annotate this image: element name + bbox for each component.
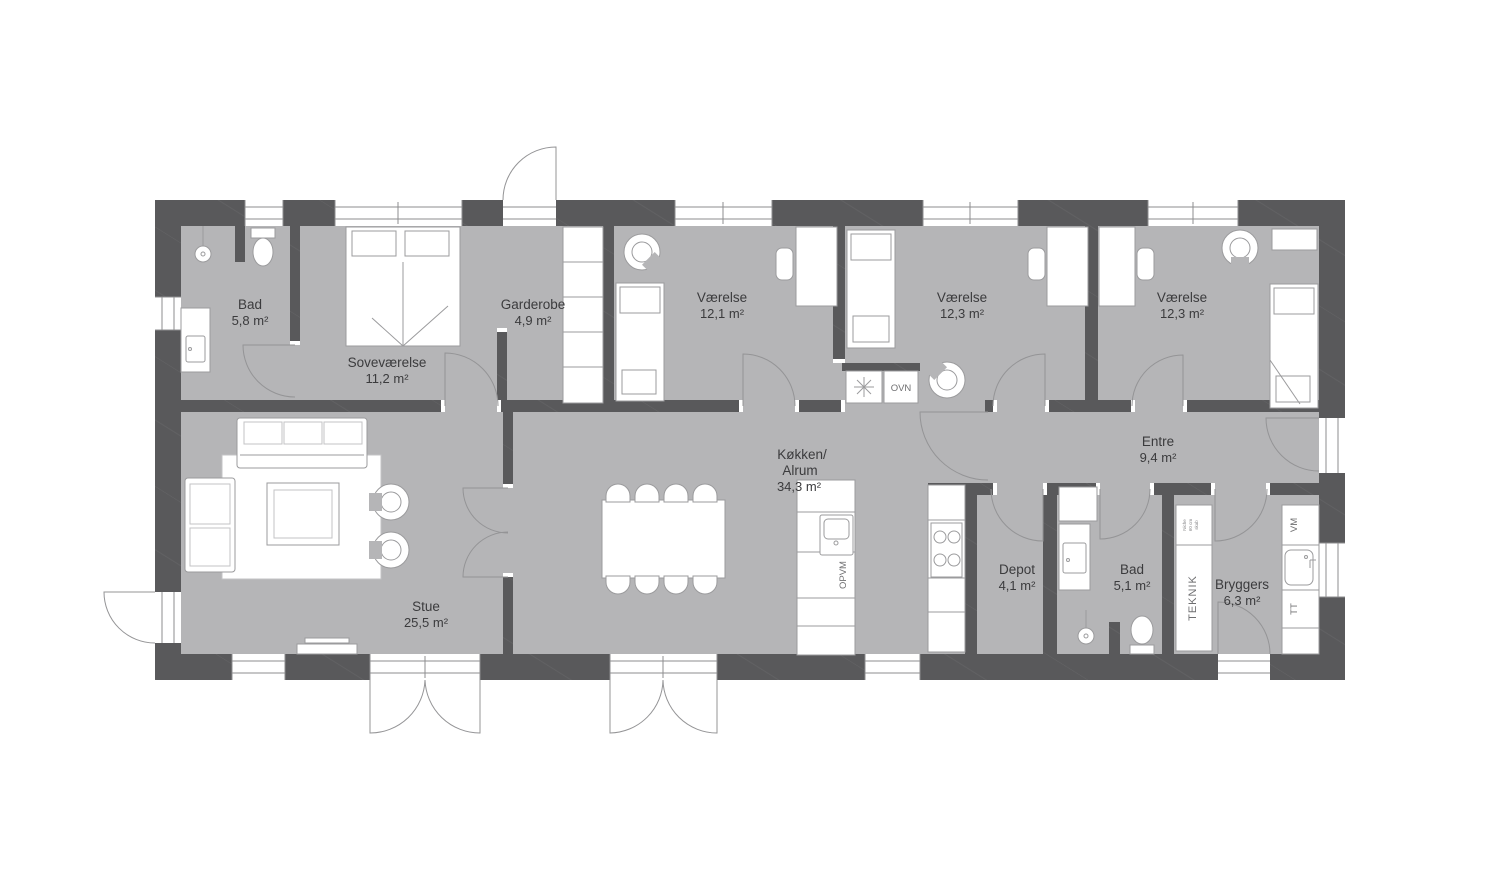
room-label-depot: Depot bbox=[999, 562, 1035, 577]
room-label-vaerelse3: Værelse bbox=[1157, 290, 1207, 305]
window bbox=[865, 654, 920, 680]
window bbox=[1319, 543, 1345, 597]
cabinet-note: Niche bbox=[1182, 519, 1187, 531]
wardrobe-shelving bbox=[563, 227, 603, 403]
room-area-stue: 25,5 m² bbox=[404, 615, 449, 630]
bedroom-furniture bbox=[346, 227, 460, 346]
sofa bbox=[237, 418, 367, 468]
tumble-dryer-label: TT bbox=[1289, 603, 1300, 615]
room-label-sovevaerelse: Soveværelse bbox=[348, 355, 427, 370]
shelf bbox=[1272, 229, 1317, 250]
desk-chair bbox=[1137, 248, 1154, 280]
french-doors bbox=[610, 654, 717, 733]
teknik-label: TEKNIK bbox=[1187, 575, 1199, 621]
room-area-entre: 9,4 m² bbox=[1140, 450, 1178, 465]
pillow bbox=[405, 231, 449, 256]
armchair bbox=[185, 478, 235, 572]
desk-chair bbox=[776, 248, 793, 280]
kitchen-counter-hob bbox=[928, 485, 965, 652]
utility-sink bbox=[1282, 545, 1319, 590]
window bbox=[155, 297, 181, 330]
room-area-bad1: 5,8 m² bbox=[232, 313, 270, 328]
room-label-garderobe: Garderobe bbox=[501, 297, 566, 312]
shower-icon bbox=[1078, 628, 1094, 644]
toilet-icon bbox=[251, 228, 275, 266]
tv-bench bbox=[297, 638, 357, 654]
floor-plan: OVN OPVM bbox=[0, 0, 1500, 887]
window bbox=[923, 200, 1018, 226]
room-area-garderobe: 4,9 m² bbox=[515, 313, 553, 328]
freezer-icon bbox=[854, 377, 874, 397]
vanity-sink bbox=[1059, 524, 1090, 590]
room-label-vaerelse1: Værelse bbox=[697, 290, 747, 305]
pillow bbox=[851, 234, 891, 260]
french-doors bbox=[370, 654, 480, 733]
cabinet-note: skab bbox=[1194, 520, 1199, 530]
washing-machine bbox=[1282, 505, 1319, 545]
desk-chair bbox=[1028, 248, 1045, 280]
pillow bbox=[1274, 288, 1314, 314]
room-area-vaerelse3: 12,3 m² bbox=[1160, 306, 1205, 321]
exterior-door bbox=[104, 592, 181, 643]
desk bbox=[1099, 227, 1135, 306]
room-area-bad2: 5,1 m² bbox=[1114, 578, 1152, 593]
desk bbox=[796, 227, 837, 306]
tumble-dryer bbox=[1282, 590, 1319, 628]
cabinet-note: 60 cm bbox=[1188, 519, 1193, 532]
pillow bbox=[620, 287, 660, 313]
room-label-bad1: Bad bbox=[238, 297, 262, 312]
cabinet bbox=[1282, 628, 1319, 654]
window bbox=[245, 200, 283, 226]
room-label-entre: Entre bbox=[1142, 434, 1174, 449]
room-label-vaerelse2: Værelse bbox=[937, 290, 987, 305]
window bbox=[675, 200, 772, 226]
room-label-bryggers: Bryggers bbox=[1215, 577, 1269, 592]
floor-plan-page: OVN OPVM bbox=[0, 0, 1500, 887]
kitchen-island: OPVM bbox=[797, 480, 855, 655]
window bbox=[335, 200, 462, 226]
coffee-table bbox=[267, 483, 339, 545]
room-label-bad2: Bad bbox=[1120, 562, 1144, 577]
exterior-door bbox=[503, 147, 556, 226]
freezer-oven-cabinets: OVN bbox=[846, 371, 918, 403]
room-label-alrum: Alrum bbox=[782, 463, 817, 478]
dishwasher-label: OPVM bbox=[838, 561, 849, 589]
cabinet bbox=[1059, 487, 1097, 521]
room-area-vaerelse1: 12,1 m² bbox=[700, 306, 745, 321]
shower-icon bbox=[195, 246, 211, 262]
dining-set bbox=[602, 484, 725, 594]
pillow bbox=[352, 231, 396, 256]
room-area-vaerelse2: 12,3 m² bbox=[940, 306, 985, 321]
room-label-stue: Stue bbox=[412, 599, 440, 614]
washing-machine-label: VM bbox=[1289, 518, 1300, 532]
dining-table bbox=[602, 500, 725, 578]
vanity-sink bbox=[181, 308, 210, 372]
room-label-koekken: Køkken/ bbox=[777, 447, 827, 462]
window bbox=[1148, 200, 1238, 226]
oven-label: OVN bbox=[891, 383, 912, 394]
room-area-depot: 4,1 m² bbox=[999, 578, 1037, 593]
room-area-bryggers: 6,3 m² bbox=[1224, 593, 1262, 608]
toilet-icon bbox=[1130, 616, 1154, 654]
desk bbox=[1047, 227, 1088, 306]
room-area-koekken: 34,3 m² bbox=[777, 479, 822, 494]
window bbox=[232, 654, 285, 680]
room-area-sovevaerelse: 11,2 m² bbox=[365, 371, 409, 386]
